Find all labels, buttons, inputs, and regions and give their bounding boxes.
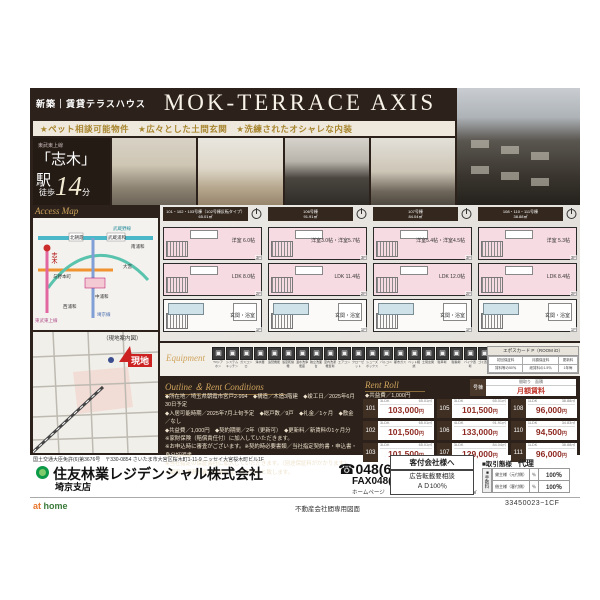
access-map-label: Access Map <box>35 206 78 216</box>
interior-photo <box>285 138 369 205</box>
stairs-icon <box>166 241 188 257</box>
fee-table: ■手数料 貸主様（元付側）％100％借主様（客付側）％100％ <box>482 468 570 493</box>
unit-rent: 96,000円 <box>528 405 575 418</box>
stairs-icon <box>376 241 398 257</box>
equipment-icon: ▣ <box>338 347 351 360</box>
equipment-icon: ▣ <box>296 347 309 360</box>
equipment-item: ▣ 土間玄関 <box>422 347 434 368</box>
floorplan-column: 108・110・111号棟38.88㎡ 洋室 5.3帖 3F LDK 8.4帖 … <box>478 207 577 332</box>
card-value: 総賃料の1.5％ <box>523 365 559 373</box>
unit-rent: 101,500円 <box>454 405 506 418</box>
equipment-icons: ▣ TVドアホン ▣ システムキッチン ▣ ガスコンロ ▣ 浄水器 ▣ 追焚機能… <box>212 347 482 368</box>
room-label: LDK 8.0帖 <box>232 273 255 280</box>
site-map-caption: （現地案内図） <box>103 334 142 342</box>
stairs-icon <box>166 313 188 329</box>
equipment-item: ▣ 駐輪場 <box>450 347 462 368</box>
guarantor-card-headers: 初回保証料月額保証料更新料 <box>489 357 578 365</box>
card-header: 更新料 <box>559 357 578 365</box>
stairs-icon <box>481 241 503 257</box>
equipment-item-label: 追焚機能 <box>268 361 280 365</box>
room-label: 洋室 6.0帖 <box>232 237 255 244</box>
floorplan-1F: 玄関・浴室 1F <box>268 299 367 332</box>
stairs-icon <box>271 277 293 293</box>
equipment-item-label: クローゼット <box>352 361 364 368</box>
site-map: 現地 （現地案内図） <box>33 332 158 453</box>
floor-tag: 3F <box>570 255 577 260</box>
floorplan-2F: LDK 11.4帖 2F <box>268 263 367 296</box>
equipment-item-label: システムキッチン <box>226 361 238 368</box>
map-line-name: 東武東上線 <box>35 317 58 324</box>
equipment-item-label: 浴室乾燥機 <box>282 361 294 368</box>
guarantor-card-table: エポスカード P（ROOM iD） 初回保証料月額保証料更新料 賃料等の50％総… <box>487 346 579 374</box>
unit-rent: 103,000円 <box>380 405 432 418</box>
unit-rent: 133,000円 <box>454 427 506 440</box>
room-label: LDK 12.0帖 <box>439 273 465 280</box>
floor-tag: 1F <box>465 327 472 332</box>
floorplan-column: 101・102・103号棟（102号棟反転タイプ）65.01㎡ 洋室 6.0帖 … <box>163 207 262 332</box>
floor-tag: 3F <box>255 255 262 260</box>
floorplan-columns: 101・102・103号棟（102号棟反転タイプ）65.01㎡ 洋室 6.0帖 … <box>163 207 577 332</box>
floorplan-3F: 洋室 6.0帖 3F <box>163 227 262 260</box>
equipment-item-label: 都市ガス <box>394 361 406 365</box>
equipment-item: ▣ 独立洗面台 <box>310 347 322 368</box>
equipment-icon: ▣ <box>282 347 295 360</box>
unit-size: 65.01㎡ <box>419 421 432 426</box>
unit-rent: 94,500円 <box>528 427 575 440</box>
map-station: 西浦和 <box>63 303 77 310</box>
equipment-icon: ▣ <box>422 347 435 360</box>
interior-photo <box>112 138 196 205</box>
compass-icon <box>251 207 262 220</box>
unit-size: 34.83㎡ <box>562 421 575 426</box>
outline-line: ◆入居可能時期／2025年7月上旬予定 ◆総戸数／9戸 ◆礼金／1ヶ月 ◆敷金／… <box>165 410 357 427</box>
rent-roll-note: ◆共益費／1,000円 <box>365 391 411 399</box>
unit-number: 102 <box>363 421 378 440</box>
legend-top: 間取り 面積 <box>486 379 576 386</box>
rent-unit: 108 1LDK38.88㎡ 96,000円 <box>511 399 577 418</box>
floor-tag: 1F <box>360 327 367 332</box>
map-station: 中浦和 <box>95 293 109 300</box>
equipment-item: ▣ ガスコンロ <box>240 347 252 368</box>
room-label: 玄関・浴室 <box>440 312 465 319</box>
rent-unit: 106 4LDK91.91㎡ 133,000円 <box>437 421 508 440</box>
floorplan-1F: 玄関・浴室 1F <box>163 299 262 332</box>
floorplan-1F: 玄関・浴室 1F <box>373 299 472 332</box>
rent-unit: 101 3LDK65.01㎡ 103,000円 <box>363 399 434 418</box>
unit-plan: 3LDK <box>454 443 464 448</box>
equipment-item: ▣ バルコニー <box>380 347 392 368</box>
room-label: 玄関・浴室 <box>335 312 360 319</box>
fee-rows: 貸主様（元付側）％100％借主様（客付側）％100％ <box>493 469 570 493</box>
building-photo <box>457 88 580 205</box>
unit-number: 101 <box>363 399 378 418</box>
map-station: 与野本町 <box>53 273 71 280</box>
rent-grid: 101 3LDK65.01㎡ 103,000円 102 3LDK65.01㎡ 1… <box>363 399 577 452</box>
equipment-item-label: TVドアホン <box>212 361 224 368</box>
equipment-item: ▣ ペット相談 <box>408 347 420 368</box>
room-label: 玄関・浴室 <box>230 312 255 319</box>
outline-line: ※家財保険（賠償責任付）に加入していただきます。 <box>165 435 357 443</box>
equipment-item-label: 温水洗浄便座 <box>296 361 308 368</box>
map-station-shiki: 志木 <box>50 251 57 265</box>
floor-tag: 1F <box>570 327 577 332</box>
unit-plan: 3LDK <box>380 443 390 448</box>
guarantor-card-values: 賃料等の50％総賃料の1.5％1年毎 <box>489 365 578 373</box>
rent-unit: 105 3LDK65.01㎡ 101,500円 <box>437 399 508 418</box>
map-line-name: 埼京線 <box>97 311 111 318</box>
equipment-item: ▣ TVドアホン <box>212 347 224 368</box>
equipment-item: ▣ 駐車場 <box>436 347 448 368</box>
guarantor-card-title: エポスカード P（ROOM iD） <box>488 347 578 356</box>
unit-plan: 1LDK <box>528 399 538 404</box>
compass-icon <box>356 207 367 220</box>
sheet-usage-note: 不動産会社間専用図面 <box>295 503 360 513</box>
equipment-item: ▣ 都市ガス <box>394 347 406 368</box>
unit-plan: 3LDK <box>380 421 390 426</box>
stairs-icon <box>271 313 293 329</box>
floorplan-2F: LDK 8.0帖 2F <box>163 263 262 296</box>
unit-size: 65.01㎡ <box>493 399 506 404</box>
stairs-icon <box>481 313 503 329</box>
branch-name: 埼京支店 <box>55 480 91 493</box>
site-marker-label: 現地 <box>131 355 149 366</box>
unit-plan: 3LDK <box>454 399 464 404</box>
tagline-text: ★ペット相談可能物件 ★広々とした土間玄関 ★洗練されたオシャレな内装 <box>40 123 452 135</box>
equipment-icon: ▣ <box>240 347 253 360</box>
equipment-item-label: バルコニー <box>380 361 392 368</box>
equipment-icon: ▣ <box>464 347 477 360</box>
floorplan-column: 106号棟91.91㎡ 洋室3.0帖・洋室5.7帖 3F LDK 11.4帖 2… <box>268 207 367 332</box>
equipment-item-label: 浄水器 <box>254 361 266 365</box>
equipment-item: ▣ エアコン <box>338 347 350 368</box>
broker-notice-body: 広告転載要相談ＡＤ100％ <box>390 470 474 495</box>
floorplan-3F: 洋室 5.3帖 3F <box>478 227 577 260</box>
unit-plan: 1LDK <box>528 421 538 426</box>
map-station: 南浦和 <box>131 243 145 250</box>
unit-rent: 101,500円 <box>380 427 432 440</box>
map-station: 北朝霞 <box>70 234 84 241</box>
room-label: 洋室5.4帖・洋室4.5帖 <box>416 237 465 244</box>
stairs-icon <box>376 313 398 329</box>
equipment-item-label: 駐輪場 <box>450 361 462 365</box>
station-box: 東武東上線 「志木」駅 徒歩14分 <box>33 138 110 205</box>
equipment-item-label: 土間玄関 <box>422 361 434 365</box>
floor-tag: 2F <box>570 291 577 296</box>
floorplan-3F: 洋室3.0帖・洋室5.7帖 3F <box>268 227 367 260</box>
unit-size: 65.01㎡ <box>419 399 432 404</box>
property-type-badge: 新築｜賃貸テラスハウス <box>36 97 146 110</box>
equipment-icon: ▣ <box>226 347 239 360</box>
stairs-icon <box>481 277 503 293</box>
legend-rent: 月額賃料 <box>486 386 576 396</box>
card-value: 賃料等の50％ <box>489 365 523 373</box>
unit-number: 108 <box>511 399 526 418</box>
card-header: 月額保証料 <box>523 357 559 365</box>
equipment-icon: ▣ <box>324 347 337 360</box>
equipment-item-label: ペット相談 <box>408 361 420 368</box>
equipment-icon: ▣ <box>254 347 267 360</box>
equipment-label: Equipment <box>166 353 205 363</box>
walk-time: 徒歩14分 <box>39 171 90 202</box>
unit-size: 65.01㎡ <box>419 443 432 448</box>
card-value: 1年毎 <box>559 365 578 373</box>
fee-row: 貸主様（元付側）％100％ <box>493 469 570 481</box>
equipment-icon: ▣ <box>212 347 225 360</box>
plan-title: 106号棟91.91㎡ <box>268 207 353 221</box>
equipment-item: ▣ 浄水器 <box>254 347 266 368</box>
equipment-item: ▣ 浴室乾燥機 <box>282 347 294 368</box>
floorplan-1F: 玄関・浴室 1F <box>478 299 577 332</box>
floorplan-2F: LDK 8.4帖 2F <box>478 263 577 296</box>
equipment-item-label: 駐車場 <box>436 361 448 365</box>
equipment-item: ▣ 室内洗濯機置場 <box>324 347 336 368</box>
broker-notice-title: 客付会社様へ <box>390 455 474 470</box>
equipment-icon: ▣ <box>436 347 449 360</box>
equipment-icon: ▣ <box>450 347 463 360</box>
unit-rent: 96,000円 <box>528 449 575 462</box>
document-code: 33450023−1CF <box>505 500 559 507</box>
unit-size: 91.91㎡ <box>493 421 506 426</box>
equipment-item-label: エアコン <box>338 361 350 365</box>
floor-tag: 1F <box>255 327 262 332</box>
equipment-icon: ▣ <box>394 347 407 360</box>
outline-line: ◆共益費／1,000円 ◆契約期間／2年（更新可） ◆更新料／新賃料の1ヶ月分 <box>165 427 357 435</box>
equipment-item-label: シューズボックス <box>366 361 378 368</box>
floor-tag: 3F <box>465 255 472 260</box>
stairs-icon <box>376 277 398 293</box>
equipment-item-label: 独立洗面台 <box>310 361 322 368</box>
floor-tag: 3F <box>360 255 367 260</box>
card-header: 初回保証料 <box>489 357 523 365</box>
compass-icon <box>566 207 577 220</box>
fee-table-label: ■手数料 <box>482 468 492 493</box>
floorplan-2F: LDK 12.0帖 2F <box>373 263 472 296</box>
stairs-icon <box>271 241 293 257</box>
rent-unit: 102 3LDK65.01㎡ 101,500円 <box>363 421 434 440</box>
interior-photo <box>371 138 455 205</box>
footer-divider <box>30 497 580 498</box>
unit-number: 105 <box>437 399 452 418</box>
plan-title: 107号棟84.04㎡ <box>373 207 458 221</box>
railway-map: 志木 北朝霞 武蔵浦和 南浦和 大宮 与野本町 中浦和 西浦和 武蔵野線 埼京線… <box>33 218 158 330</box>
map-line-name: 武蔵野線 <box>113 225 131 232</box>
unit-plan: 4LDK <box>454 421 464 426</box>
equipment-icon: ▣ <box>380 347 393 360</box>
unit-plan: 1LDK <box>528 443 538 448</box>
equipment-item: ▣ 追焚機能 <box>268 347 280 368</box>
stairs-icon <box>166 277 188 293</box>
equipment-item-label: バイク置場 <box>464 361 476 368</box>
equipment-icon: ▣ <box>366 347 379 360</box>
fee-row: 借主様（客付側）％100％ <box>493 481 570 493</box>
map-station: 武蔵浦和 <box>108 234 126 241</box>
room-label: 玄関・浴室 <box>545 312 570 319</box>
floorplan-column: 107号棟84.04㎡ 洋室5.4帖・洋室4.5帖 3F LDK 12.0帖 2… <box>373 207 472 332</box>
flyer-page: 新築｜賃貸テラスハウス MOK-TERRACE AXIS ★ペット相談可能物件 … <box>0 0 600 600</box>
room-label: 洋室 5.3帖 <box>547 237 570 244</box>
legend-unit: 号棟 <box>470 379 486 396</box>
plan-title: 101・102・103号棟（102号棟反転タイプ）65.01㎡ <box>163 207 248 221</box>
company-logo-icon <box>36 466 49 479</box>
equipment-item-label: 室内洗濯機置場 <box>324 361 336 368</box>
outline-line: ◆所在地／埼玉県朝霞市宮戸2-994 ◆構造／木造3階建 ◆竣工日／2025年6… <box>165 393 357 410</box>
map-station: 大宮 <box>123 263 132 270</box>
equipment-icon: ▣ <box>408 347 421 360</box>
floorplan-3F: 洋室5.4帖・洋室4.5帖 3F <box>373 227 472 260</box>
equipment-icon: ▣ <box>268 347 281 360</box>
unit-number: 110 <box>511 421 526 440</box>
equipment-item: ▣ クローゼット <box>352 347 364 368</box>
equipment-item: ▣ 温水洗浄便座 <box>296 347 308 368</box>
rent-unit: 110 1LDK34.83㎡ 94,500円 <box>511 421 577 440</box>
unit-number: 103 <box>363 443 378 462</box>
equipment-icon: ▣ <box>310 347 323 360</box>
equipment-item: ▣ バイク置場 <box>464 347 476 368</box>
unit-size: 84.04㎡ <box>493 443 506 448</box>
room-label: 洋室3.0帖・洋室5.7帖 <box>311 237 360 244</box>
interior-photo-strip <box>112 138 455 205</box>
room-label: LDK 11.4帖 <box>335 273 360 280</box>
equipment-icon: ▣ <box>352 347 365 360</box>
room-label: LDK 8.4帖 <box>547 273 570 280</box>
floor-tag: 2F <box>465 291 472 296</box>
unit-number: 106 <box>437 421 452 440</box>
unit-size: 38.88㎡ <box>562 443 575 448</box>
property-title: MOK-TERRACE AXIS <box>150 90 450 116</box>
equipment-item: ▣ システムキッチン <box>226 347 238 368</box>
equipment-item-label: ガスコンロ <box>240 361 252 368</box>
athome-logo: at home <box>33 501 68 511</box>
rent-roll-legend: 号棟 間取り 面積 月額賃料 <box>470 379 576 396</box>
equipment-item: ▣ シューズボックス <box>366 347 378 368</box>
floor-tag: 2F <box>255 291 262 296</box>
unit-size: 38.88㎡ <box>562 399 575 404</box>
unit-plan: 3LDK <box>380 399 390 404</box>
floor-tag: 2F <box>360 291 367 296</box>
interior-photo <box>198 138 282 205</box>
license-line: 国土交通大臣免許(6)第3676号 〒330-0854 さいたま市大宮区桜木町1… <box>33 456 264 463</box>
plan-title: 108・110・111号棟38.88㎡ <box>478 207 563 221</box>
compass-icon <box>461 207 472 220</box>
